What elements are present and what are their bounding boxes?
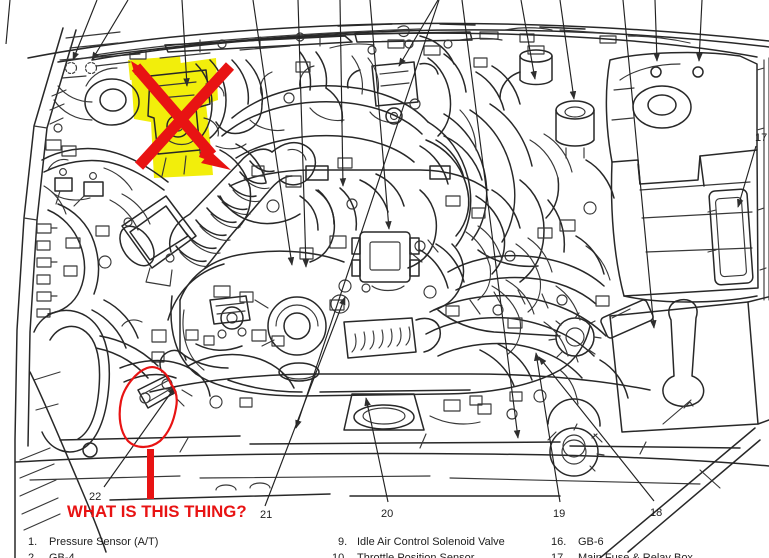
svg-text:Pressure Sensor (A/T): Pressure Sensor (A/T) xyxy=(49,536,158,548)
svg-text:GB-6: GB-6 xyxy=(578,536,604,548)
svg-text:10.: 10. xyxy=(332,552,347,558)
svg-text:20: 20 xyxy=(381,508,393,520)
svg-text:WHAT IS THIS THING?: WHAT IS THIS THING? xyxy=(67,502,247,521)
svg-text:18: 18 xyxy=(650,507,662,519)
svg-text:Idle Air Control Solenoid Valv: Idle Air Control Solenoid Valve xyxy=(357,536,505,548)
svg-text:1.: 1. xyxy=(28,536,37,548)
svg-text:GB-4: GB-4 xyxy=(49,552,75,558)
svg-text:17.: 17. xyxy=(551,552,566,558)
svg-text:Throttle Position Sensor: Throttle Position Sensor xyxy=(357,552,475,558)
svg-text:Main Fuse & Relay Box: Main Fuse & Relay Box xyxy=(578,552,693,558)
svg-text:9.: 9. xyxy=(338,536,347,548)
svg-text:19: 19 xyxy=(553,508,565,520)
svg-text:21: 21 xyxy=(260,509,272,521)
svg-text:17: 17 xyxy=(755,132,767,144)
svg-text:16.: 16. xyxy=(551,536,566,548)
svg-text:22: 22 xyxy=(89,491,101,503)
svg-text:2.: 2. xyxy=(28,552,37,558)
